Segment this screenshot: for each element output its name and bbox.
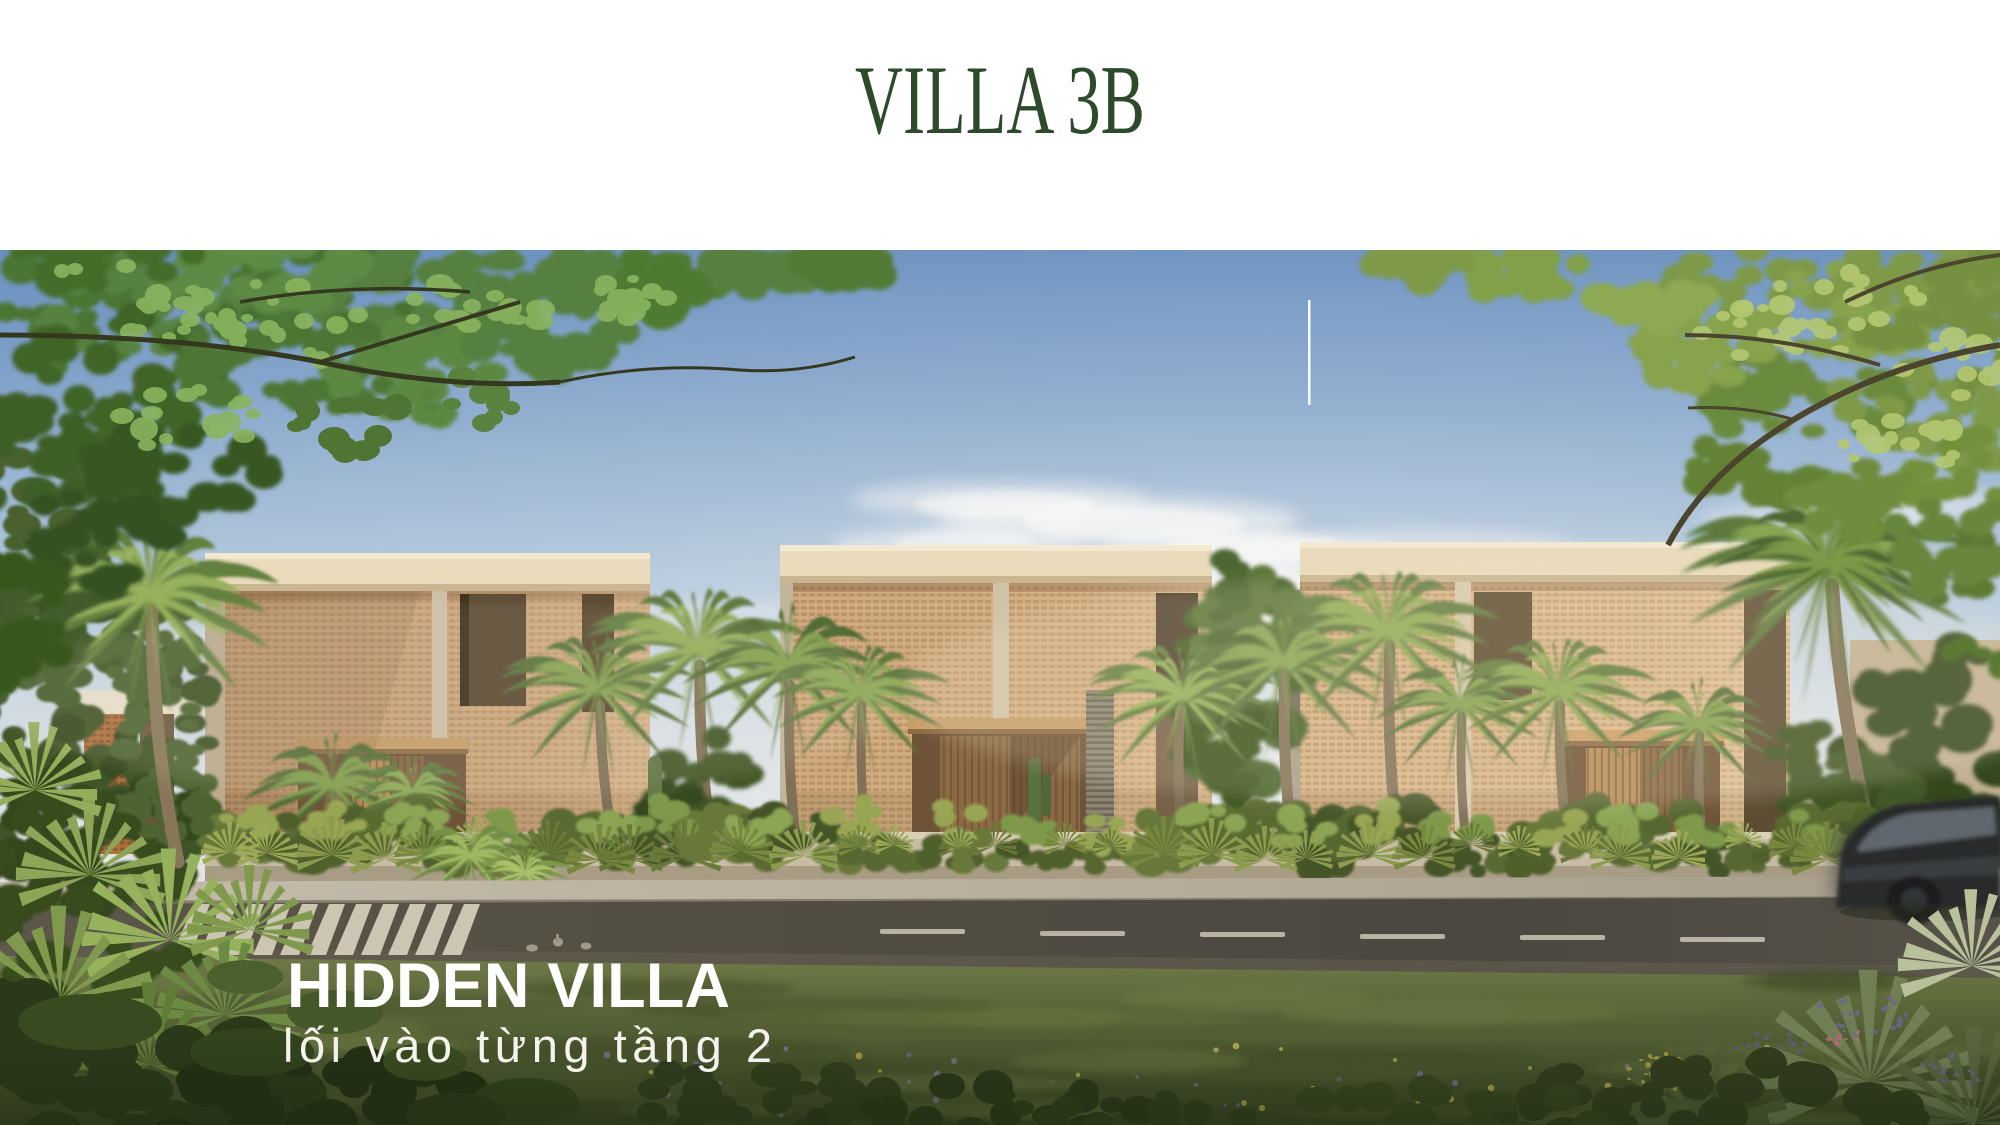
svg-text:lối vào từng tầng 2: lối vào từng tầng 2: [283, 1019, 772, 1072]
svg-text:HIDDEN VILLA: HIDDEN VILLA: [287, 951, 730, 1021]
